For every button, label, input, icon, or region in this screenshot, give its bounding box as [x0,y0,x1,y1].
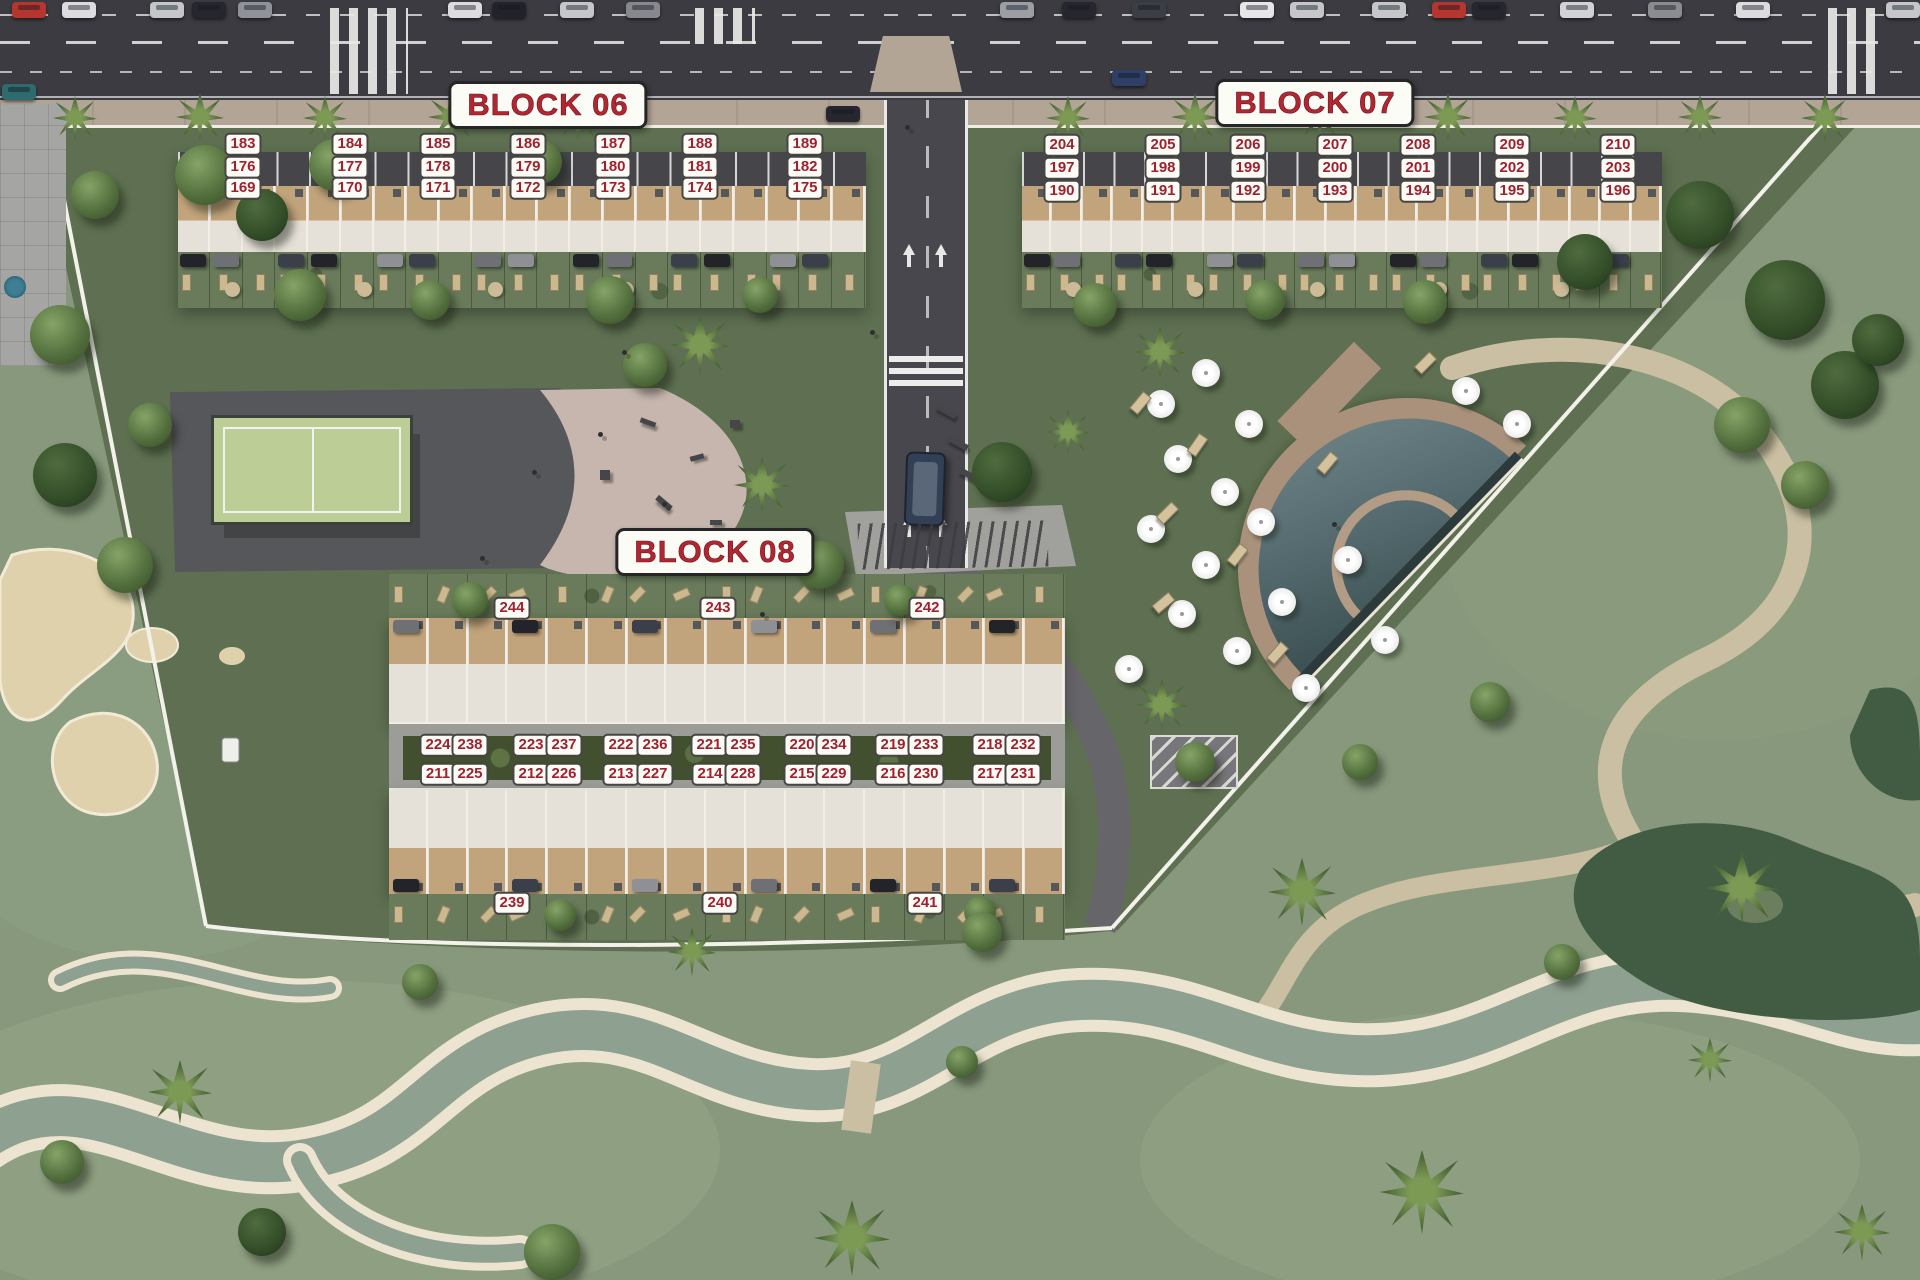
tree-icon [238,1208,286,1256]
garden-module [1449,252,1478,308]
unit-module [707,790,746,894]
sun-lounger [1461,274,1470,291]
sun-lounger [575,274,584,291]
unit-label-195[interactable]: 195 [1493,180,1530,203]
sun-lounger [845,274,854,291]
sun-lounger [1035,906,1044,923]
sun-lounger [1518,274,1527,291]
sand-bunker [52,713,157,814]
parasol-icon [1292,674,1320,702]
parked-car [512,620,538,633]
person-icon [1332,522,1337,527]
sun-lounger [749,905,764,924]
rooftop-unit [455,883,463,891]
tree-icon [1470,682,1510,722]
unit-label-207[interactable]: 207 [1316,134,1353,157]
siteplan-canvas: 1831841851861871881891761771781791801811… [0,0,1920,1280]
parked-car [377,254,403,267]
unit-label-240[interactable]: 240 [701,892,738,915]
unit-label-242[interactable]: 242 [908,597,945,620]
unit-module [508,618,547,722]
garden-module [628,574,667,618]
tree-icon [1403,280,1447,324]
rooftop-unit [754,189,762,197]
unit-label-169[interactable]: 169 [224,177,261,200]
parked-car [12,2,46,18]
unit-label-176[interactable]: 176 [224,156,261,179]
sun-lounger [836,587,855,602]
parked-car [1240,2,1274,18]
sun-lounger [628,585,646,603]
unit-module [747,790,786,894]
unit-label-196[interactable]: 196 [1599,180,1636,203]
unit-label-210[interactable]: 210 [1599,134,1636,157]
garden-module [1113,252,1142,308]
unit-label-201[interactable]: 201 [1399,157,1436,180]
parasol-icon [1115,655,1143,683]
parked-car [393,879,419,892]
unit-module [389,790,428,894]
sun-lounger [1300,274,1309,291]
rooftop-unit [455,621,463,629]
golf-cart [222,738,239,762]
rooftop-unit [721,189,729,197]
sun-lounger [1644,274,1653,291]
crosswalk [1828,8,1882,94]
unit-module [469,790,508,894]
unit-label-232[interactable]: 232 [1004,734,1041,757]
sun-lounger [1152,274,1161,291]
garden-module [1205,252,1234,308]
unit-module [637,186,669,252]
rooftop-unit [852,621,860,629]
unit-label-192[interactable]: 192 [1229,180,1266,203]
rooftop-unit [494,621,502,629]
rooftop-unit [812,621,820,629]
parked-car [192,2,226,18]
garden-module [1632,252,1661,308]
unit-module [375,186,407,252]
lane-arrow-icon [935,238,947,255]
crosswalk [330,8,408,94]
tree-icon [274,269,326,321]
unit-module [469,618,508,722]
unit-module [866,618,905,722]
rooftop-unit [693,883,701,891]
sun-lounger [452,274,461,291]
garden-module [389,574,428,618]
unit-module [735,186,767,252]
garden-module [946,574,985,618]
parked-car [492,2,526,18]
tree-icon [1745,260,1825,340]
rooftop-unit [574,621,582,629]
rooftop-unit [614,621,622,629]
tree-icon [40,1140,84,1184]
unit-label-230[interactable]: 230 [907,763,944,786]
rooftop-unit [1587,189,1595,197]
tree-icon [97,537,153,593]
rooftop-unit [1051,621,1059,629]
unit-module [628,618,667,722]
parasol-icon [1452,377,1480,405]
unit-module [747,618,786,722]
garden-module [826,894,865,940]
rooftop-unit [852,883,860,891]
unit-label-219[interactable]: 219 [874,734,911,757]
parked-car [311,254,337,267]
parked-car [802,254,828,267]
unit-label-233[interactable]: 233 [907,734,944,757]
unit-label-238[interactable]: 238 [451,734,488,757]
unit-label-217[interactable]: 217 [971,763,1008,786]
garden-module [1479,252,1508,308]
parasol-icon [1147,390,1175,418]
access-road [884,100,968,568]
unit-label-202[interactable]: 202 [1493,157,1530,180]
unit-label-182[interactable]: 182 [786,156,823,179]
unit-label-214[interactable]: 214 [691,763,728,786]
unit-label-226[interactable]: 226 [545,763,582,786]
unit-label-185[interactable]: 185 [419,133,456,156]
unit-label-171[interactable]: 171 [419,177,456,200]
unit-label-187[interactable]: 187 [594,133,631,156]
parked-car [2,84,36,100]
unit-module [667,618,706,722]
unit-label-203[interactable]: 203 [1599,157,1636,180]
tree-icon [1342,744,1378,780]
unit-module [1025,618,1064,722]
parked-car [393,620,419,633]
rooftop-unit [492,189,500,197]
garden-module [637,252,669,308]
rooftop-unit [557,189,565,197]
garden-module [473,252,505,308]
unit-label-173[interactable]: 173 [594,177,631,200]
parasol-icon [1211,478,1239,506]
unit-module [1113,186,1142,252]
block-08-north-units [389,618,1065,722]
unit-module [707,618,746,722]
garden-module [1296,252,1325,308]
garden-module [800,252,832,308]
tree-icon [1714,397,1770,453]
tree-icon [1073,283,1117,327]
garden-parasol [1310,282,1325,297]
sun-lounger [672,907,691,922]
unit-label-218[interactable]: 218 [971,734,1008,757]
parked-car [409,254,435,267]
unit-label-188[interactable]: 188 [681,133,718,156]
rooftop-unit [733,883,741,891]
unit-label-178[interactable]: 178 [419,156,456,179]
sun-lounger [956,585,974,603]
unit-label-190[interactable]: 190 [1043,180,1080,203]
tree-icon [402,964,438,1000]
garden-parasol [225,282,240,297]
unit-label-174[interactable]: 174 [681,177,718,200]
sun-lounger [649,274,658,291]
rooftop-unit [295,189,303,197]
unit-label-227[interactable]: 227 [636,763,673,786]
tree-icon [128,403,172,447]
unit-label-244[interactable]: 244 [493,597,530,620]
rooftop-unit [393,189,401,197]
fountain-pool [4,276,26,298]
crosswalk [889,350,963,386]
tree-icon [972,442,1032,502]
rooftop-unit [1130,189,1138,197]
unit-label-236[interactable]: 236 [636,734,673,757]
garden-module [628,894,667,940]
unit-module [866,790,905,894]
parked-car [870,879,896,892]
sun-lounger [1369,274,1378,291]
unit-label-186[interactable]: 186 [509,133,546,156]
parked-car [989,620,1015,633]
sun-lounger [792,585,810,603]
unit-label-229[interactable]: 229 [815,763,852,786]
garden-module [747,574,786,618]
rooftop-unit [693,621,701,629]
rooftop-unit [655,189,663,197]
garden-module [588,574,627,618]
sun-lounger [1209,274,1218,291]
unit-label-216[interactable]: 216 [874,763,911,786]
unit-label-179[interactable]: 179 [509,156,546,179]
parked-car [1512,254,1538,267]
sun-lounger [808,274,817,291]
unit-label-172[interactable]: 172 [509,177,546,200]
parked-car [1237,254,1263,267]
unit-label-181[interactable]: 181 [681,156,718,179]
bus [904,451,947,526]
garden-module [342,252,374,308]
unit-label-175[interactable]: 175 [786,177,823,200]
unit-label-213[interactable]: 213 [602,763,639,786]
rooftop-unit [1099,189,1107,197]
unit-module [1083,186,1112,252]
unit-label-200[interactable]: 200 [1316,157,1353,180]
unit-label-183[interactable]: 183 [224,133,261,156]
unit-label-221[interactable]: 221 [690,734,727,757]
unit-module [588,618,627,722]
sun-lounger [436,585,451,604]
rooftop-unit [1465,189,1473,197]
traffic-island [870,36,962,92]
unit-label-189[interactable]: 189 [786,133,823,156]
parked-car [1290,2,1324,18]
sun-lounger [792,905,810,923]
sun-lounger [1026,274,1035,291]
tree-icon [1175,742,1215,782]
unit-module [946,618,985,722]
parked-car [238,2,272,18]
unit-label-199[interactable]: 199 [1229,157,1266,180]
block-07-title: BLOCK 07 [1215,79,1414,127]
unit-module [1449,186,1478,252]
unit-label-205[interactable]: 205 [1144,134,1181,157]
garden-parasol [488,282,503,297]
sun-lounger [871,906,880,923]
rooftop-unit [812,883,820,891]
sun-lounger [558,586,567,603]
parked-car [475,254,501,267]
garden-parasol [1188,282,1203,297]
tree-icon [410,280,450,320]
parked-car [1420,254,1446,267]
sun-lounger [550,274,559,291]
sun-lounger [514,274,523,291]
sun-lounger [985,587,1004,602]
road-marking [0,14,1920,16]
unit-label-197[interactable]: 197 [1043,157,1080,180]
block-08-title: BLOCK 08 [615,528,814,576]
crosswalk [695,8,755,44]
parked-car [1372,2,1406,18]
parked-car [1432,2,1466,18]
parked-car [1560,2,1594,18]
sun-lounger [394,906,403,923]
garden-module [538,252,570,308]
unit-label-198[interactable]: 198 [1144,157,1181,180]
parked-car [671,254,697,267]
garden-module [1510,252,1539,308]
unit-label-170[interactable]: 170 [331,177,368,200]
person-icon [532,470,537,475]
parked-car [62,2,96,18]
sun-lounger [1035,586,1044,603]
parked-car [751,620,777,633]
parked-car [770,254,796,267]
unit-label-194[interactable]: 194 [1399,180,1436,203]
unit-label-206[interactable]: 206 [1229,134,1266,157]
unit-label-193[interactable]: 193 [1316,180,1353,203]
unit-label-223[interactable]: 223 [512,734,549,757]
garden-module [375,252,407,308]
unit-label-204[interactable]: 204 [1043,134,1080,157]
rooftop-unit [494,883,502,891]
parked-car [1132,2,1166,18]
unit-label-212[interactable]: 212 [512,763,549,786]
road-marking [0,41,1920,44]
parked-car [1146,254,1172,267]
parked-car [1115,254,1141,267]
sun-lounger [256,274,265,291]
garden-module [833,252,865,308]
unit-label-209[interactable]: 209 [1493,134,1530,157]
unit-label-231[interactable]: 231 [1004,763,1041,786]
bike-racks [858,520,1049,569]
person-icon [480,556,485,561]
unit-module [1266,186,1295,252]
unit-module [429,618,468,722]
parked-car [1329,254,1355,267]
parked-car [704,254,730,267]
parasol-icon [1192,359,1220,387]
sun-lounger [710,274,719,291]
unit-label-191[interactable]: 191 [1144,180,1181,203]
rooftop-unit [574,883,582,891]
person-icon [870,330,875,335]
rooftop-unit [733,621,741,629]
unit-module [826,790,865,894]
rooftop-unit [971,883,979,891]
unit-label-234[interactable]: 234 [815,734,852,757]
parked-car [1481,254,1507,267]
unit-label-235[interactable]: 235 [724,734,761,757]
parasol-icon [1192,551,1220,579]
parked-car [508,254,534,267]
parked-car [213,254,239,267]
sun-lounger [394,586,403,603]
unit-module [826,618,865,722]
parked-car [632,620,658,633]
rooftop-unit [852,189,860,197]
block-08-south-building [389,790,1065,894]
unit-label-237[interactable]: 237 [545,734,582,757]
parked-car [989,879,1015,892]
sun-lounger [477,274,486,291]
person-icon [598,432,603,437]
garden-module [1327,252,1356,308]
unit-label-177[interactable]: 177 [331,156,368,179]
garden-module [1144,252,1173,308]
garden-module [506,252,538,308]
tree-icon [623,343,667,387]
garden-module [866,894,905,940]
parked-car [1886,2,1920,18]
parasol-icon [1247,508,1275,536]
parked-car [180,254,206,267]
unit-label-241[interactable]: 241 [906,892,943,915]
padel-court [214,418,410,522]
unit-module [667,790,706,894]
unit-label-180[interactable]: 180 [594,156,631,179]
rooftop-unit [1221,189,1229,197]
sun-lounger [1117,274,1126,291]
person-icon [622,350,627,355]
main-road [0,0,1920,100]
unit-label-225[interactable]: 225 [451,763,488,786]
tree-icon [30,305,90,365]
unit-module [429,790,468,894]
parasol-icon [1235,410,1263,438]
parked-car [448,2,482,18]
sun-lounger [1609,274,1618,291]
unit-label-243[interactable]: 243 [699,597,736,620]
sun-lounger [436,905,451,924]
unit-label-184[interactable]: 184 [331,133,368,156]
rooftop-unit [1051,883,1059,891]
unit-module [1025,790,1064,894]
tree-icon [71,171,119,219]
unit-label-208[interactable]: 208 [1399,134,1436,157]
sun-lounger [871,586,880,603]
garden-module [667,894,706,940]
unit-label-222[interactable]: 222 [602,734,639,757]
sun-lounger [673,274,682,291]
unit-label-228[interactable]: 228 [724,763,761,786]
unit-label-239[interactable]: 239 [493,892,530,915]
tree-icon [946,1046,978,1078]
garden-module [1025,574,1064,618]
parked-car [278,254,304,267]
lane-arrow-icon [903,238,915,255]
unit-module [906,790,945,894]
sun-lounger [182,274,191,291]
parked-car [573,254,599,267]
